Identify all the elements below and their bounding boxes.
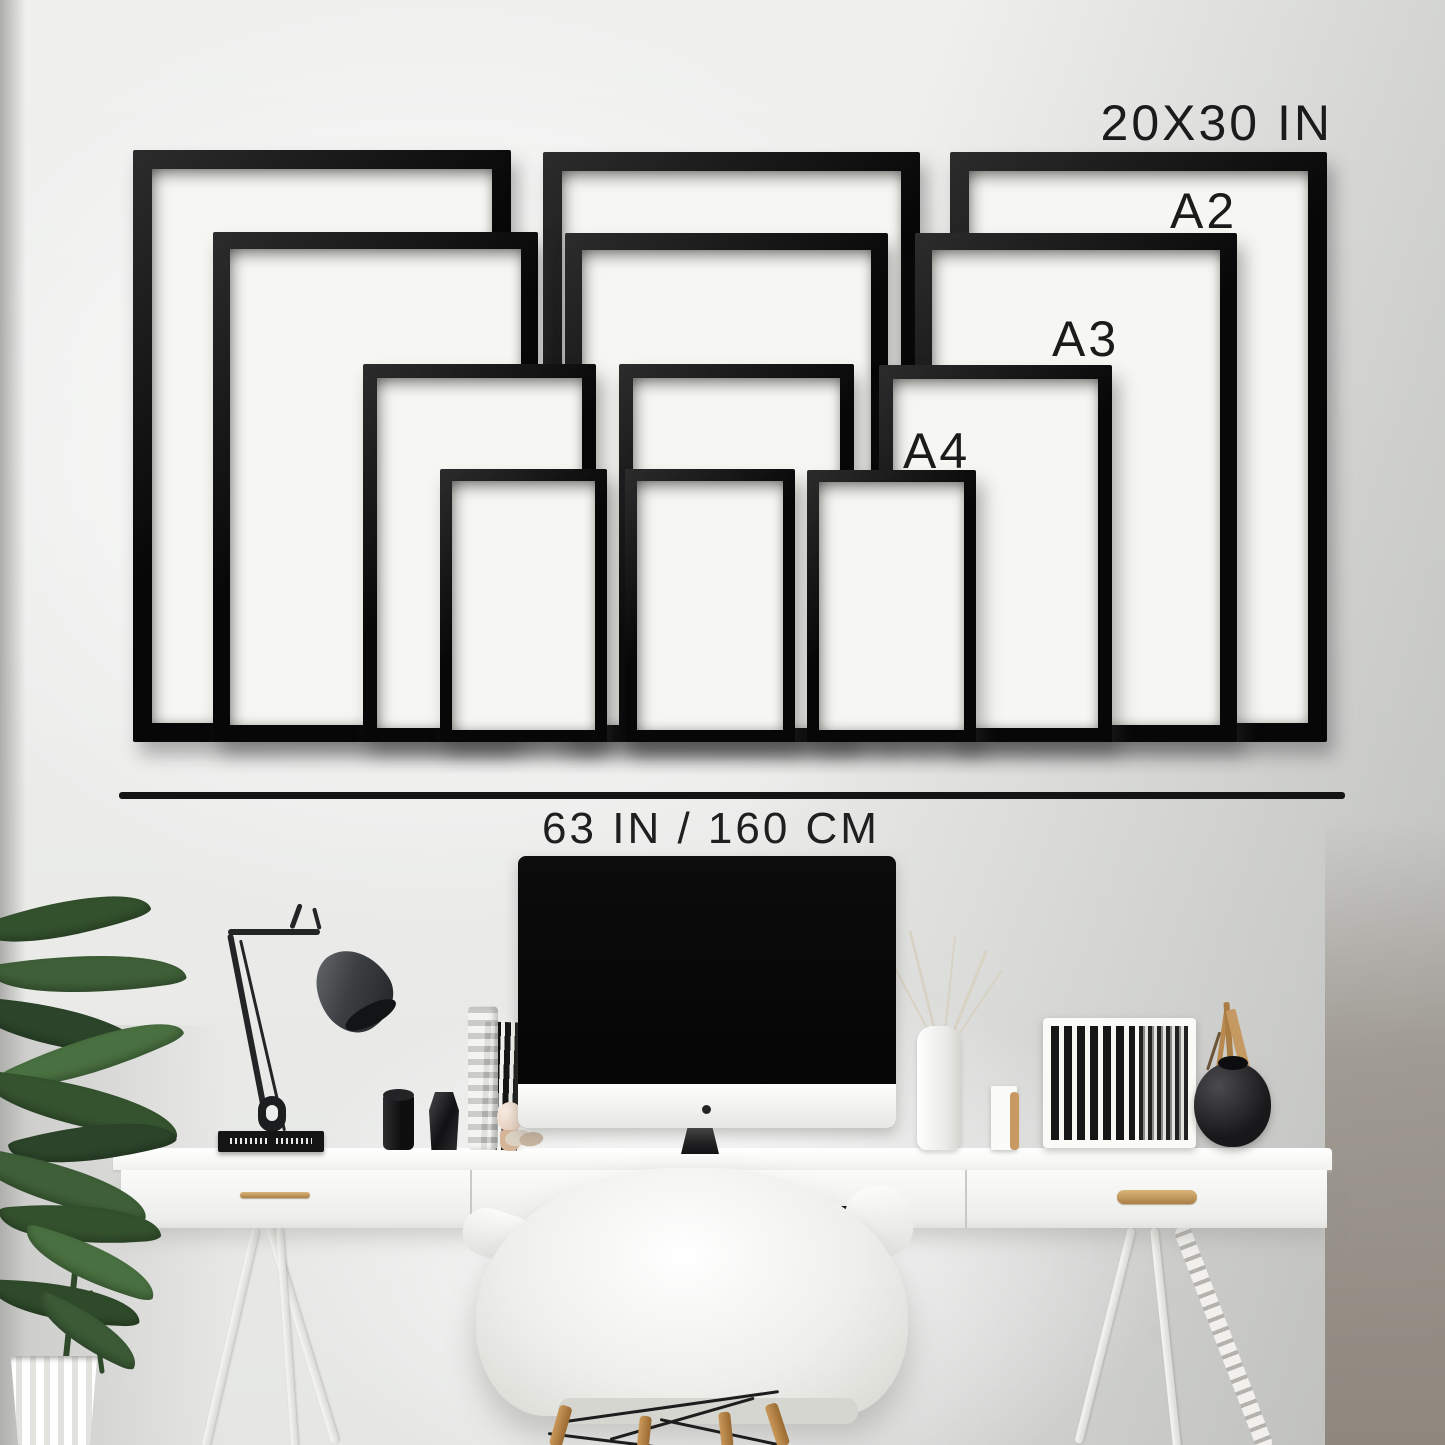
lamp-joint-hole — [266, 1105, 278, 1121]
width-ruler-line — [119, 792, 1345, 799]
lamp-base-book — [218, 1131, 324, 1152]
size-label-a4: A4 — [903, 422, 970, 480]
plant-pot — [8, 1356, 100, 1445]
frame-mat — [452, 481, 595, 730]
black-cup — [383, 1094, 414, 1150]
size-label-a3: A3 — [1052, 310, 1119, 368]
lamp-top-bar — [228, 929, 320, 935]
imac-logo-dot — [702, 1105, 711, 1114]
width-ruler-label: 63 IN / 160 CM — [542, 804, 880, 854]
size-label-20x30: 20X30 IN — [1101, 94, 1333, 152]
size-label-a2: A2 — [1170, 182, 1237, 240]
book-spine-print — [276, 1138, 312, 1144]
frame-a4-center — [625, 469, 795, 742]
drawer-seam — [965, 1170, 967, 1228]
imac-computer — [518, 856, 896, 1128]
book-spine-print — [230, 1138, 268, 1144]
organizer-black-slats — [1051, 1026, 1135, 1140]
wooden-figurine — [1010, 1092, 1019, 1150]
round-black-vase — [1194, 1062, 1271, 1147]
organizer-marbled-slats — [1139, 1026, 1188, 1140]
frame-mat — [637, 481, 783, 730]
lamp-base-joint — [258, 1096, 286, 1132]
glass-vase — [468, 1006, 498, 1150]
white-vase — [917, 1026, 961, 1150]
drawer-handle-left — [240, 1192, 310, 1198]
record-organizer — [1043, 1018, 1196, 1148]
frame-mat — [819, 482, 964, 730]
vase-rim — [1218, 1056, 1248, 1070]
black-vase — [429, 1092, 459, 1150]
imac-chin — [518, 1084, 896, 1128]
drawer-handle-right — [1117, 1190, 1197, 1204]
frame-a4-right — [807, 470, 976, 742]
frame-a4-left — [440, 469, 607, 742]
wall-right-shadow — [1325, 820, 1445, 1445]
product-photo-frame-size-guide: 20X30 IN A2 A3 A4 63 IN / 160 CM — [0, 0, 1445, 1445]
